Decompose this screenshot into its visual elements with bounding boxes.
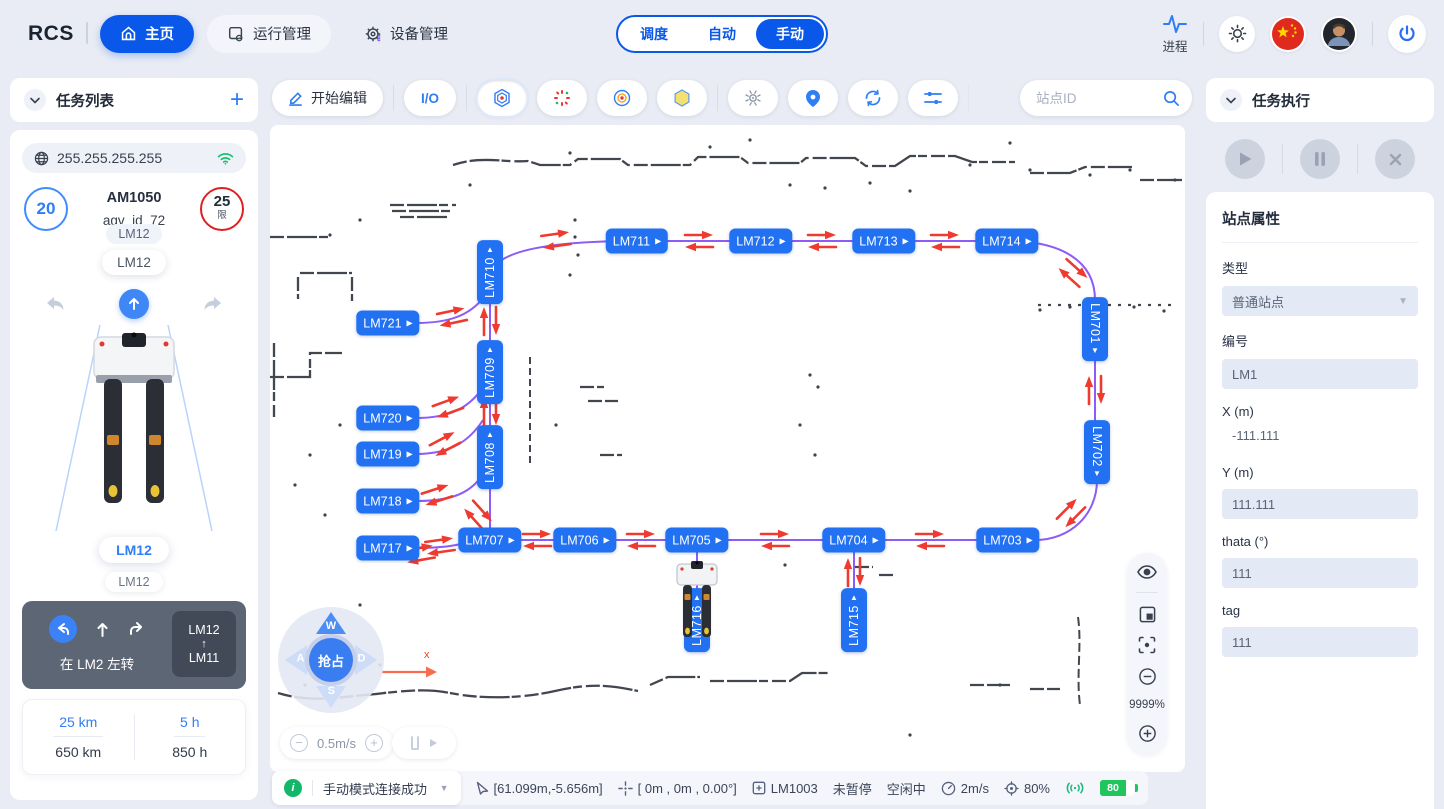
route-direction-arrows bbox=[842, 555, 866, 589]
hexagon-layer-icon bbox=[492, 88, 512, 108]
station-search bbox=[1020, 80, 1192, 116]
current-station: LM1003 bbox=[752, 781, 818, 796]
node-direction-icon: ▶ bbox=[407, 319, 413, 327]
locate-target-icon bbox=[1004, 781, 1019, 796]
network-icon bbox=[34, 151, 49, 166]
map-node-lm713[interactable]: LM713▶ bbox=[852, 229, 915, 254]
battery-level: 80 bbox=[1100, 780, 1126, 796]
layer-stations-button[interactable] bbox=[477, 80, 527, 116]
waveform-icon bbox=[1162, 13, 1188, 35]
task-execution-panel: 任务执行 站点属性 类型 普通站点 ▼ 编号 X (m) -111.111 Y … bbox=[1196, 67, 1444, 809]
map-node-lm701[interactable]: LM701▼ bbox=[1082, 297, 1108, 361]
theta-label: thata (°) bbox=[1222, 534, 1418, 549]
divider bbox=[1282, 144, 1283, 174]
station-chip: LM12 bbox=[106, 224, 161, 244]
nav-tab-label: 设备管理 bbox=[390, 23, 448, 44]
play-small-icon bbox=[429, 738, 438, 748]
map-node-lm704[interactable]: LM704▶ bbox=[822, 528, 885, 553]
distance-total: 650 km bbox=[55, 744, 101, 760]
chevron-down-icon: ▼ bbox=[1398, 296, 1408, 307]
axis-x-label: x bbox=[424, 649, 430, 661]
agv-model: AM1050 bbox=[103, 190, 165, 206]
top-navbar: RCS 主页 运行管理 设备管理 调度 自动 手动 进程 bbox=[0, 0, 1444, 67]
yellow-hexagon-icon bbox=[672, 88, 692, 108]
map-node-lm706[interactable]: LM706▶ bbox=[553, 528, 616, 553]
turn-icons bbox=[49, 615, 145, 643]
zoom-in-button[interactable] bbox=[1138, 724, 1157, 743]
divider bbox=[393, 85, 394, 111]
robot-pose: [ 0m , 0m , 0.00°] bbox=[618, 781, 737, 796]
lidar-icon bbox=[743, 88, 763, 108]
route-from: LM12 bbox=[188, 623, 219, 637]
map-node-lm709[interactable]: ▲LM709 bbox=[477, 340, 503, 404]
sun-icon bbox=[1228, 24, 1247, 43]
process-button[interactable]: 进程 bbox=[1162, 13, 1188, 55]
nav-tab-operation[interactable]: 运行管理 bbox=[207, 15, 331, 53]
x-value: -111.111 bbox=[1222, 428, 1418, 450]
language-flag-button[interactable] bbox=[1270, 16, 1306, 52]
current-station-pill: LM12 bbox=[99, 537, 169, 563]
map-node-lm712[interactable]: LM712▶ bbox=[729, 229, 792, 254]
node-direction-icon: ▶ bbox=[407, 414, 413, 422]
connection-message-dropdown[interactable]: i 手动模式连接成功 ▼ bbox=[272, 771, 461, 805]
hours-today: 5 h bbox=[174, 714, 205, 737]
node-direction-icon: ▶ bbox=[716, 536, 722, 544]
route-direction-arrows bbox=[478, 304, 502, 338]
layer-target-button[interactable] bbox=[597, 80, 647, 116]
code-label: 编号 bbox=[1222, 331, 1418, 350]
node-direction-icon: ▶ bbox=[407, 544, 413, 552]
crosshair-icon bbox=[618, 781, 633, 796]
divider bbox=[86, 22, 88, 44]
turn-left-button[interactable] bbox=[44, 292, 68, 316]
idle-state: 空闲中 bbox=[887, 779, 926, 798]
map-node-lm703[interactable]: LM703▶ bbox=[976, 528, 1039, 553]
home-icon bbox=[120, 25, 137, 42]
task-list-panel: 任务列表 + 255.255.255.255 20 AM1050 agv_id_… bbox=[0, 67, 268, 809]
china-flag-icon bbox=[1271, 17, 1305, 51]
map-toolbar: 开始编辑 I/O bbox=[272, 79, 1192, 117]
turn-right-icon bbox=[128, 621, 145, 637]
hours-total: 850 h bbox=[172, 744, 207, 760]
limit-suffix: 限 bbox=[217, 209, 227, 223]
type-select-value: 普通站点 bbox=[1232, 292, 1284, 311]
starburst-icon bbox=[552, 88, 572, 108]
map-view-controls: 9999% bbox=[1127, 553, 1167, 755]
turn-left-active-icon bbox=[49, 615, 77, 643]
battery-indicator: 80 bbox=[1100, 780, 1138, 796]
route-direction-arrows bbox=[520, 528, 554, 552]
node-direction-icon: ▼ bbox=[1091, 347, 1099, 355]
mode-switch: 调度 自动 手动 bbox=[616, 15, 828, 53]
refresh-button[interactable] bbox=[848, 80, 898, 116]
main-nav: 主页 运行管理 设备管理 bbox=[100, 15, 468, 53]
speed-minus-button[interactable]: − bbox=[290, 734, 308, 752]
filter-sliders-button[interactable] bbox=[908, 80, 958, 116]
node-direction-icon: ▶ bbox=[873, 536, 879, 544]
tag-input[interactable] bbox=[1222, 627, 1418, 657]
map-node-lm707[interactable]: LM707▶ bbox=[458, 528, 521, 553]
power-button[interactable] bbox=[1388, 15, 1426, 53]
nav-tab-label: 运行管理 bbox=[253, 23, 311, 44]
chevron-down-icon: ▼ bbox=[440, 783, 449, 793]
turn-instruction: 在 LM2 左转 bbox=[32, 611, 162, 677]
speed-gauge: 20 bbox=[24, 187, 68, 231]
map-node-lm715[interactable]: ▲LM715 bbox=[841, 588, 867, 652]
station-properties-card: 站点属性 类型 普通站点 ▼ 编号 X (m) -111.111 Y (m) t… bbox=[1206, 192, 1434, 809]
forward-button[interactable] bbox=[119, 289, 149, 319]
node-direction-icon: ▲ bbox=[486, 246, 494, 254]
layer-points-button[interactable] bbox=[537, 80, 587, 116]
app-logo: RCS bbox=[28, 22, 74, 46]
route-direction-arrows bbox=[682, 229, 716, 253]
code-input[interactable] bbox=[1222, 359, 1418, 389]
minimap-button[interactable] bbox=[1139, 606, 1156, 623]
station-pills: LM12 LM12 bbox=[10, 537, 258, 592]
map-node-lm717[interactable]: LM717▶ bbox=[356, 536, 419, 561]
theta-input[interactable] bbox=[1222, 558, 1418, 588]
route-direction-arrows bbox=[928, 229, 962, 253]
divider bbox=[1372, 22, 1373, 46]
visibility-eye-button[interactable] bbox=[1137, 565, 1157, 579]
task-pause-button[interactable] bbox=[1300, 139, 1340, 179]
joystick-right-key[interactable]: D bbox=[354, 643, 378, 677]
navigation-instruction-card: 在 LM2 左转 LM12 ↑ LM11 bbox=[22, 601, 246, 689]
agv-ip-address: 255.255.255.255 bbox=[57, 150, 209, 166]
divider bbox=[1203, 22, 1204, 46]
divider bbox=[312, 780, 313, 796]
zoom-level: 9999% bbox=[1129, 699, 1165, 711]
map-node-lm708[interactable]: ▲LM708 bbox=[477, 425, 503, 489]
hours-stat: 5 h 850 h bbox=[134, 714, 246, 760]
battery-terminal bbox=[1135, 784, 1138, 792]
map-node-lm719[interactable]: LM719▶ bbox=[356, 442, 419, 467]
y-input[interactable] bbox=[1222, 489, 1418, 519]
station-chip-elevated: LM12 bbox=[102, 250, 166, 275]
node-direction-icon: ▶ bbox=[780, 237, 786, 245]
route-direction-arrows bbox=[805, 229, 839, 253]
lidar-button[interactable] bbox=[728, 80, 778, 116]
gauge-icon bbox=[941, 781, 956, 796]
refresh-icon bbox=[864, 89, 882, 107]
map-node-lm702[interactable]: LM702▼ bbox=[1084, 420, 1110, 484]
target-station-chip-row: LM12 bbox=[10, 250, 258, 275]
target-rings-icon bbox=[612, 88, 632, 108]
map-agv-forklift[interactable] bbox=[674, 561, 720, 641]
agv-visual bbox=[10, 323, 258, 535]
node-direction-icon: ▶ bbox=[407, 450, 413, 458]
rcs-app: RCS 主页 运行管理 设备管理 调度 自动 手动 进程 bbox=[0, 0, 1444, 809]
map-node-lm720[interactable]: LM720▶ bbox=[356, 406, 419, 431]
agv-card: 255.255.255.255 20 AM1050 agv_id_72 25 限… bbox=[10, 130, 258, 800]
collapse-chevron-icon[interactable] bbox=[24, 89, 46, 111]
tag-label: tag bbox=[1222, 603, 1418, 618]
joystick-seize-button[interactable]: 抢占 bbox=[305, 634, 357, 686]
node-direction-icon: ▶ bbox=[1027, 536, 1033, 544]
fork-action-button[interactable] bbox=[392, 727, 456, 759]
node-direction-icon: ▶ bbox=[655, 237, 661, 245]
mode-dispatch[interactable]: 调度 bbox=[620, 19, 688, 49]
joystick-up-key[interactable]: W bbox=[314, 611, 348, 635]
map-origin-axis: x bbox=[382, 665, 438, 679]
turn-instruction-text: 在 LM2 左转 bbox=[60, 653, 134, 673]
node-direction-icon: ▶ bbox=[604, 536, 610, 544]
map-node-lm711[interactable]: LM711▶ bbox=[606, 229, 668, 254]
divider bbox=[1357, 144, 1358, 174]
io-button[interactable]: I/O bbox=[404, 80, 456, 116]
y-label: Y (m) bbox=[1222, 465, 1418, 480]
divider bbox=[1136, 592, 1158, 593]
topbar-actions: 进程 bbox=[1162, 13, 1426, 55]
pencil-icon bbox=[288, 91, 303, 106]
task-action-buttons bbox=[1206, 133, 1434, 185]
layer-area-button[interactable] bbox=[657, 80, 707, 116]
joystick-down-key[interactable]: S bbox=[314, 685, 348, 709]
sliders-icon bbox=[924, 90, 942, 106]
task-execution-header: 任务执行 bbox=[1206, 78, 1434, 122]
speed-plus-button[interactable]: + bbox=[365, 734, 383, 752]
divider bbox=[717, 85, 718, 111]
straight-icon bbox=[95, 621, 110, 638]
node-direction-icon: ▲ bbox=[486, 431, 494, 439]
cursor-icon bbox=[476, 781, 489, 795]
forklift-graphic bbox=[94, 333, 174, 504]
add-task-button[interactable]: + bbox=[230, 90, 244, 110]
type-label: 类型 bbox=[1222, 258, 1418, 277]
speed-readout: 2m/s bbox=[941, 781, 989, 796]
route-to: LM11 bbox=[189, 651, 219, 665]
divider bbox=[466, 85, 467, 111]
fork-icon bbox=[410, 736, 423, 750]
map-area: 开始编辑 I/O bbox=[268, 67, 1196, 809]
cursor-position-value: [61.099m,-5.656m] bbox=[494, 781, 603, 796]
divider bbox=[968, 85, 969, 111]
turn-right-button[interactable] bbox=[200, 292, 224, 316]
collapse-chevron-icon[interactable] bbox=[1220, 89, 1242, 111]
manual-direction-controls bbox=[44, 289, 224, 319]
task-list-title: 任务列表 bbox=[56, 90, 220, 111]
task-play-button[interactable] bbox=[1225, 139, 1265, 179]
power-icon bbox=[1397, 24, 1417, 44]
limit-value: 25 bbox=[214, 195, 231, 209]
plus-square-icon bbox=[752, 781, 766, 795]
task-execution-title: 任务执行 bbox=[1252, 90, 1420, 111]
speed-value: 2m/s bbox=[961, 781, 989, 796]
map-node-lm710[interactable]: ▲LM710 bbox=[477, 240, 503, 304]
node-direction-icon: ▲ bbox=[486, 346, 494, 354]
route-direction-arrows bbox=[537, 226, 574, 254]
node-direction-icon: ▶ bbox=[1026, 237, 1032, 245]
mode-manual[interactable]: 手动 bbox=[756, 19, 824, 49]
user-avatar[interactable] bbox=[1321, 16, 1357, 52]
manual-speed-control: − 0.5m/s + bbox=[280, 727, 393, 759]
robot-pose-value: [ 0m , 0m , 0.00°] bbox=[638, 781, 737, 796]
odometer-card: 25 km 650 km 5 h 850 h bbox=[22, 699, 246, 775]
signal-icon bbox=[1065, 781, 1085, 795]
wifi-icon bbox=[217, 152, 234, 165]
nav-tab-device[interactable]: 设备管理 bbox=[344, 15, 468, 53]
process-label: 进程 bbox=[1162, 36, 1187, 55]
avatar-image bbox=[1322, 17, 1356, 51]
start-edit-label: 开始编辑 bbox=[311, 88, 367, 108]
node-direction-icon: ▶ bbox=[407, 497, 413, 505]
route-segment-box: LM12 ↑ LM11 bbox=[172, 611, 236, 677]
node-direction-icon: ▼ bbox=[1093, 470, 1101, 478]
speed-limit-gauge: 25 限 bbox=[200, 187, 244, 231]
manual-speed-value: 0.5m/s bbox=[317, 736, 356, 751]
task-list-header: 任务列表 + bbox=[10, 78, 258, 122]
route-direction-arrows bbox=[758, 528, 792, 552]
pause-state: 未暂停 bbox=[833, 779, 872, 798]
locate-pin-button[interactable] bbox=[788, 80, 838, 116]
type-select[interactable]: 普通站点 ▼ bbox=[1222, 286, 1418, 316]
agv-meta: AM1050 agv_id_72 bbox=[103, 190, 165, 228]
localization-confidence: 80% bbox=[1004, 781, 1050, 796]
nav-tab-home[interactable]: 主页 bbox=[100, 15, 194, 53]
monitor-gear-icon bbox=[227, 25, 245, 43]
agv-ip-row[interactable]: 255.255.255.255 bbox=[22, 143, 246, 173]
route-arrow: ↑ bbox=[201, 638, 207, 650]
mode-auto[interactable]: 自动 bbox=[688, 19, 756, 49]
node-direction-icon: ▶ bbox=[903, 237, 909, 245]
speed-gauge-value: 20 bbox=[37, 199, 56, 219]
nav-tab-label: 主页 bbox=[145, 23, 174, 44]
map-node-lm718[interactable]: LM718▶ bbox=[356, 489, 419, 514]
manual-joystick: W A S D 抢占 bbox=[278, 607, 384, 713]
distance-stat: 25 km 650 km bbox=[23, 714, 134, 760]
location-pin-icon bbox=[805, 89, 821, 108]
theme-toggle-button[interactable] bbox=[1219, 16, 1255, 52]
info-icon: i bbox=[284, 779, 302, 797]
connection-message: 手动模式连接成功 bbox=[323, 779, 430, 798]
signal-indicator bbox=[1065, 781, 1085, 795]
map-node-lm714[interactable]: LM714▶ bbox=[975, 229, 1038, 254]
route-direction-arrows bbox=[624, 528, 658, 552]
gear-icon bbox=[364, 25, 382, 43]
distance-today: 25 km bbox=[53, 714, 103, 737]
next-station-pill: LM12 bbox=[105, 572, 162, 592]
status-bar: i 手动模式连接成功 ▼ [61.099m,-5.656m] [ 0m , 0m… bbox=[272, 771, 1148, 805]
current-station-value: LM1003 bbox=[771, 781, 818, 796]
node-direction-icon: ▲ bbox=[850, 594, 858, 602]
map-canvas[interactable]: ▲LM710▲LM709▲LM708LM711▶LM712▶LM713▶LM71… bbox=[270, 125, 1185, 772]
map-node-lm705[interactable]: LM705▶ bbox=[665, 528, 728, 553]
zoom-out-button[interactable] bbox=[1138, 667, 1157, 686]
station-properties-title: 站点属性 bbox=[1222, 208, 1418, 243]
center-focus-button[interactable] bbox=[1138, 636, 1156, 654]
cursor-position: [61.099m,-5.656m] bbox=[476, 781, 603, 796]
task-cancel-button[interactable] bbox=[1375, 139, 1415, 179]
search-icon[interactable] bbox=[1163, 90, 1180, 107]
confidence-value: 80% bbox=[1024, 781, 1050, 796]
route-direction-arrows bbox=[913, 528, 947, 552]
route-direction-arrows bbox=[1083, 373, 1107, 407]
map-node-lm721[interactable]: LM721▶ bbox=[356, 311, 419, 336]
x-label: X (m) bbox=[1222, 404, 1418, 419]
station-search-input[interactable] bbox=[1036, 91, 1163, 106]
node-direction-icon: ▶ bbox=[509, 536, 515, 544]
start-edit-button[interactable]: 开始编辑 bbox=[272, 80, 383, 116]
